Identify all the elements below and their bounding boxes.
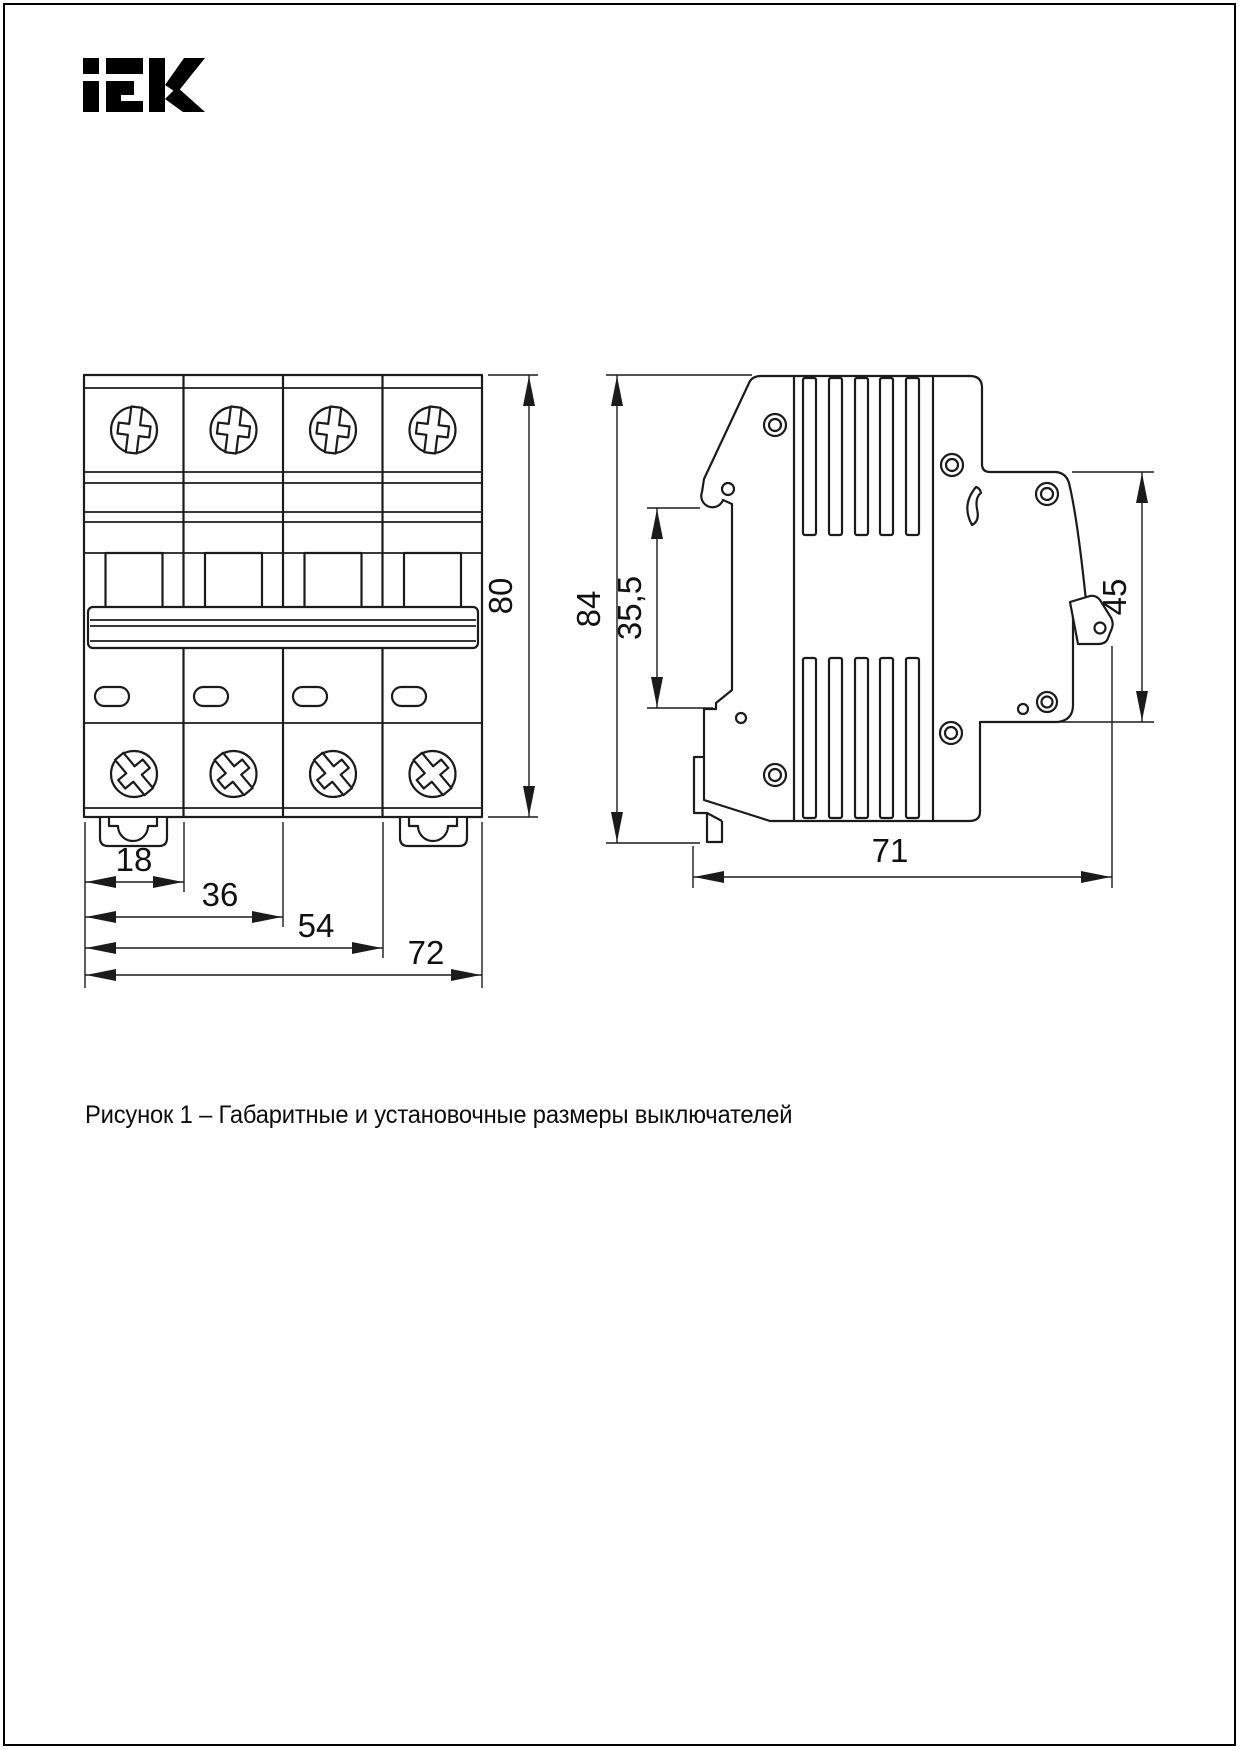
side-view-drawing [694, 376, 1113, 842]
logo-e-mid [106, 81, 134, 95]
dim-label-18: 18 [116, 841, 153, 878]
logo-k-lower-leg [165, 87, 205, 112]
phillips-screw-icon [410, 405, 456, 455]
figure-caption: Рисунок 1 – Габаритные и установочные ра… [85, 1101, 792, 1130]
logo-k-stem [149, 58, 165, 112]
datasheet-page: IEK [0, 0, 1240, 1750]
dim-label-71: 71 [872, 832, 909, 869]
dim-label-35-5: 35,5 [611, 576, 648, 640]
dim-label-80: 80 [482, 578, 519, 615]
dim-label-36: 36 [202, 876, 239, 913]
logo-i-stem [83, 81, 99, 112]
din-clip-tab [400, 818, 467, 846]
dim-label-54: 54 [298, 907, 335, 944]
logo-i-dot [83, 58, 99, 74]
phillips-screw-icon [310, 405, 356, 455]
dim-label-45: 45 [1096, 579, 1133, 616]
logo-e-top [106, 58, 143, 74]
front-view-drawing [84, 375, 482, 846]
dimension-height-80: 80 [482, 375, 538, 817]
handle-tie-bar [88, 607, 478, 648]
phillips-screw-icon [111, 405, 157, 455]
dim-label-84: 84 [570, 591, 607, 628]
phillips-screw-icon [211, 405, 257, 455]
dim-label-72: 72 [408, 934, 445, 971]
figure-1-drawing: IEK [0, 0, 1240, 1750]
logo-e-bottom [106, 101, 143, 112]
dimension-35-5: 35,5 [611, 508, 713, 708]
iek-logo: IEK [83, 58, 205, 112]
logo-k-upper-leg [165, 58, 205, 93]
